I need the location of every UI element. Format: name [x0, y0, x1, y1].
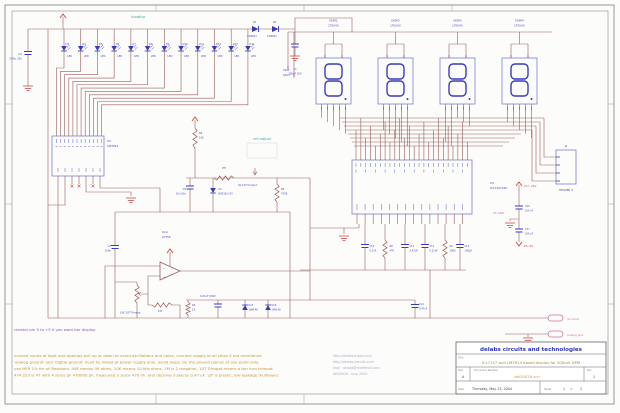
capacitor-symbol — [186, 186, 194, 189]
label: D2 — [273, 20, 277, 24]
label: D15 — [249, 304, 254, 307]
capacitor-symbol — [515, 229, 523, 232]
segment-glyph — [387, 64, 404, 79]
diode-icon — [162, 46, 168, 51]
note-line: unused inputs of logic and opamps pull u… — [14, 353, 263, 358]
label: 0.1uF — [370, 250, 377, 253]
led-value: LED — [84, 54, 89, 58]
wire — [510, 219, 519, 221]
label: D1 — [253, 20, 257, 24]
wire — [105, 266, 160, 318]
no-connect-icon — [71, 185, 74, 188]
contact-links: http://delabs.tripod.com http://delabs-c… — [333, 354, 380, 376]
capacitor-symbol — [111, 246, 119, 249]
label: C17 — [525, 228, 530, 231]
led-ref: D10 — [183, 42, 189, 46]
bar-mode-note: resistor pin 9 to +5 if you want bar dis… — [14, 327, 96, 332]
label: 47K — [390, 250, 395, 253]
label: HALF — [283, 68, 290, 72]
wire — [61, 51, 81, 136]
decimal-point — [469, 98, 471, 100]
opamp-minus: − — [163, 266, 166, 270]
port-agnd-label: analog gnd — [567, 333, 583, 337]
label: 1N4148 — [249, 309, 259, 312]
link-line: mail : delabs@rediffmail.com — [333, 366, 380, 370]
capacitor-symbol — [291, 44, 299, 47]
led-ref: D9 — [166, 42, 170, 46]
diode-icon — [128, 46, 134, 51]
label: 100 nF — [525, 233, 534, 236]
diode-icon — [61, 46, 67, 51]
label: R8 — [390, 245, 394, 248]
led-ref: D5 — [99, 42, 103, 46]
ground-icon — [23, 86, 33, 91]
link-line: del20029 - may 2004 — [333, 372, 367, 376]
label: 1N4007 — [267, 34, 277, 38]
label: ICL7107CPL — [490, 186, 508, 190]
label: C11 — [410, 245, 415, 248]
label: 0.01uF 630V — [200, 294, 216, 298]
diode-icon — [212, 46, 218, 51]
label: D16 — [272, 304, 277, 307]
wire — [48, 184, 65, 205]
led-ref: D3 — [66, 42, 70, 46]
display-ref: DISP4 — [515, 19, 524, 23]
rev-label: Rev — [587, 368, 592, 372]
doc-number: del20029.sch — [514, 374, 540, 379]
segment-glyph — [449, 64, 466, 79]
led-ref: D4 — [82, 42, 86, 46]
label: J2 — [564, 144, 568, 148]
led-value: LED — [151, 54, 156, 58]
connector-box — [556, 150, 576, 184]
port-icon — [548, 315, 563, 321]
segment-glyph — [325, 81, 342, 96]
label: C12 — [430, 245, 435, 248]
wire — [85, 51, 181, 136]
diode-icon — [145, 46, 151, 51]
resistor-symbol — [275, 184, 279, 202]
capacitor-symbol — [24, 52, 32, 55]
label: C10 — [370, 245, 375, 248]
led-ref: D6 — [116, 42, 120, 46]
decimal-point — [531, 98, 533, 100]
led-ref: D12 — [216, 42, 222, 46]
diode-icon — [78, 46, 84, 51]
led-value: LED — [234, 54, 239, 58]
circuit-graphics: C2100u 25vD3LEDD4LEDD5LEDD6LEDD7LEDD8LED… — [9, 14, 583, 343]
sheet-label: Sheet — [544, 387, 551, 391]
label: 100n — [105, 249, 112, 253]
resistor-symbol — [186, 302, 190, 315]
segment-glyph — [511, 64, 528, 79]
led-value: LED — [134, 54, 139, 58]
ground-icon — [505, 223, 515, 228]
build-notes: unused inputs of logic and opamps pull u… — [14, 353, 279, 378]
label: HEADER 4 — [559, 188, 573, 192]
rev-value: 1 — [593, 375, 595, 379]
port-input-label: dc input — [567, 317, 580, 321]
label: R4 — [199, 131, 203, 135]
led-value: LED — [101, 54, 106, 58]
capacitor-symbol — [515, 206, 523, 209]
display-ref: DISP2 — [391, 19, 400, 23]
no-connect-icon — [78, 185, 81, 188]
link-line: http://delabs-circuits.com — [333, 360, 374, 364]
diode-icon — [245, 46, 251, 51]
section-label-ref-adjust: ref adjust — [253, 136, 272, 141]
diode-icon — [272, 26, 279, 32]
label: 100pF — [465, 250, 473, 253]
resistor-symbol — [443, 240, 447, 258]
display-ref: DISP1 — [329, 19, 338, 23]
decimal-point — [345, 98, 347, 100]
sheet-of-label: of — [570, 387, 573, 391]
label: 100K — [450, 250, 457, 253]
capacitor-symbol — [214, 304, 222, 307]
diode-icon — [265, 305, 271, 310]
label: 1M — [158, 309, 162, 313]
opamp-plus: + — [163, 275, 166, 279]
segment-glyph — [449, 81, 466, 96]
label: C16 — [525, 205, 530, 208]
diode-icon — [252, 26, 259, 32]
doc-number-label: Document Number — [474, 368, 499, 372]
label: LM3914 — [107, 144, 119, 148]
led-ref: D14 — [249, 42, 255, 46]
sheet-title: ICL7107 and LM3914 based display for 200… — [482, 360, 580, 365]
led-value: LED — [117, 54, 122, 58]
wire — [172, 305, 180, 318]
diode-icon — [210, 188, 216, 193]
led-value: LED — [184, 54, 189, 58]
ps-gnd-label: PS GND — [493, 211, 504, 215]
led-ref: D11 — [199, 42, 205, 46]
capacitor-symbol — [401, 245, 409, 248]
led-ref: D13 — [233, 42, 239, 46]
ground-icon — [126, 198, 136, 203]
diode-icon — [242, 305, 248, 310]
led-value: LED — [67, 54, 72, 58]
led-ref: D8 — [149, 42, 153, 46]
capacitor-symbol — [361, 245, 369, 248]
size-label: Size — [458, 368, 464, 372]
wire — [310, 224, 359, 228]
vcc-label: Vcc +5V — [524, 184, 536, 188]
segment-glyph — [511, 81, 528, 96]
diode-icon — [111, 46, 117, 51]
wire — [57, 51, 65, 136]
diode-icon — [195, 46, 201, 51]
wire — [89, 51, 197, 136]
label: R5 — [281, 187, 285, 191]
port-icon — [548, 331, 563, 337]
label: 470E — [281, 192, 288, 196]
label: 1K — [192, 308, 196, 312]
display-part: LTS543 — [328, 24, 338, 28]
label: C2 — [18, 52, 22, 56]
label: 100uF 25V — [288, 72, 302, 76]
power-down-icon — [516, 242, 522, 246]
display-part: LTS543 — [514, 24, 524, 28]
neg-label: PS -5V — [524, 244, 533, 248]
ic-box-lm3914 — [52, 136, 104, 176]
label: 10K — [199, 136, 204, 140]
label: 0.47uF — [410, 250, 419, 253]
note-line: 474 223 is 47 with 4 zeros pF 470000 pF,… — [14, 373, 279, 378]
no-connect-icon — [92, 185, 95, 188]
trimpot-arrow — [253, 168, 257, 175]
label: 100 nF — [525, 210, 534, 213]
schematic-page: C2100u 25vD3LEDD4LEDD5LEDD6LEDD7LEDD8LED… — [0, 0, 620, 413]
led-value: LED — [168, 54, 173, 58]
label: 100u 25v — [9, 57, 22, 61]
date-label: Date: — [458, 387, 465, 391]
label: DIGIT — [283, 73, 290, 77]
label: C3 — [108, 244, 112, 248]
display-ref: DISP3 — [453, 19, 462, 23]
title-label: Title — [458, 356, 464, 360]
led-value: LED — [251, 54, 256, 58]
wire — [93, 51, 214, 136]
led-value: LED — [218, 54, 223, 58]
wire — [69, 51, 114, 136]
label: pot — [222, 166, 226, 170]
label: U5 — [490, 181, 494, 185]
label: C5 — [183, 187, 187, 191]
wire — [536, 126, 556, 173]
label: C13 — [465, 245, 470, 248]
diode-icon — [178, 46, 184, 51]
wire — [544, 118, 556, 157]
ground-icon — [339, 236, 349, 241]
company-name: delabs circuits and technologies — [480, 347, 583, 353]
date-value: Thursday, May 13, 2004 — [471, 387, 512, 391]
diode-icon — [228, 46, 234, 51]
capacitor-symbol — [421, 245, 429, 248]
schematic-canvas: C2100u 25vD3LEDD4LEDD5LEDD6LEDD7LEDD8LED… — [0, 0, 620, 413]
label: 0.22uF — [430, 250, 439, 253]
segment-glyph — [387, 81, 404, 96]
wire — [148, 294, 152, 305]
label: LF356 — [162, 235, 171, 239]
label: U1A — [162, 230, 168, 234]
wire — [295, 18, 352, 32]
title-block: delabs circuits and technologies Title I… — [456, 342, 606, 394]
display-part: LTS543 — [390, 24, 400, 28]
link-line: http://delabs.tripod.com — [333, 354, 372, 358]
wire — [77, 51, 148, 136]
label: 4K 10T trimpot — [238, 183, 257, 187]
wire — [102, 51, 248, 136]
label: 10u 63v — [176, 192, 187, 196]
label: LM336-2.5V — [218, 192, 233, 196]
label: 0.47uF — [419, 308, 428, 311]
led-value: LED — [201, 54, 206, 58]
resistor-symbol — [383, 240, 387, 258]
decimal-point — [407, 98, 409, 100]
wire — [141, 276, 160, 294]
label: 1N4148 — [272, 309, 282, 312]
display-part: LTS543 — [452, 24, 462, 28]
label: R9 — [450, 245, 454, 248]
label: C14 — [419, 303, 424, 306]
sheet-value: 1 — [563, 387, 565, 391]
wire — [540, 122, 556, 165]
resistor-symbol — [193, 128, 197, 148]
label: U2 — [107, 139, 111, 143]
resistor-symbol — [152, 303, 172, 307]
sheet-total: 1 — [580, 387, 582, 391]
wire — [115, 282, 137, 285]
segment-glyph — [325, 64, 342, 79]
diode-icon — [95, 46, 101, 51]
label: 10K 10T Trimpot — [120, 311, 141, 315]
capacitor-symbol — [411, 305, 419, 308]
label: 1N4007 — [247, 34, 257, 38]
label: U3 — [218, 187, 222, 191]
note-line: use MFR 1% for all Resistors, 49E means … — [14, 366, 274, 371]
capacitor-symbol — [456, 245, 464, 248]
note-line: 'analog ground' and 'digital ground' mus… — [14, 360, 259, 365]
ground-icon — [290, 56, 300, 61]
led-ref: D7 — [132, 42, 136, 46]
trimpot-outline — [247, 143, 277, 158]
section-label-loading: loading — [131, 14, 146, 19]
label: R3 — [192, 303, 196, 307]
